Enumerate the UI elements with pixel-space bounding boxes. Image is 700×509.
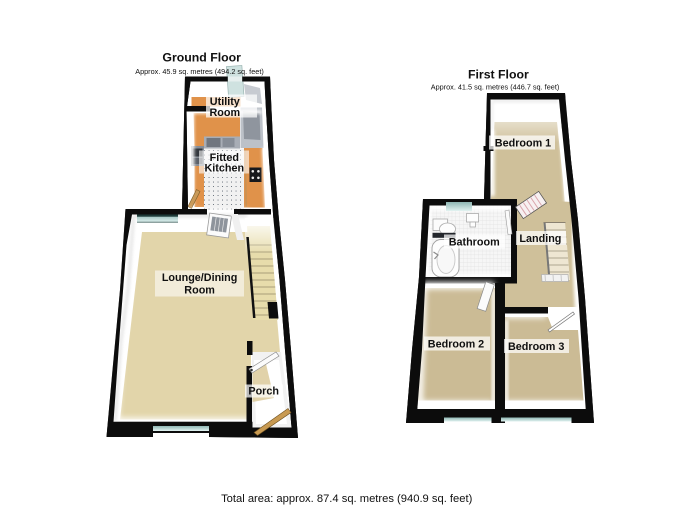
svg-text:Bedroom 1: Bedroom 1 bbox=[495, 138, 551, 150]
svg-text:Porch: Porch bbox=[248, 386, 279, 398]
svg-text:Bedroom 3: Bedroom 3 bbox=[508, 341, 564, 353]
svg-text:Bedroom 2: Bedroom 2 bbox=[428, 338, 484, 350]
svg-text:Bathroom: Bathroom bbox=[449, 237, 500, 249]
svg-text:Approx. 45.9 sq. metres (494.2: Approx. 45.9 sq. metres (494.2 sq. feet) bbox=[135, 67, 264, 76]
svg-text:Approx. 41.5 sq. metres (446.7: Approx. 41.5 sq. metres (446.7 sq. feet) bbox=[431, 83, 560, 92]
svg-text:Room: Room bbox=[210, 107, 241, 119]
svg-text:Ground Floor: Ground Floor bbox=[162, 51, 241, 65]
svg-text:Kitchen: Kitchen bbox=[205, 163, 245, 175]
svg-text:Total area: approx. 87.4 sq. m: Total area: approx. 87.4 sq. metres (940… bbox=[221, 493, 473, 505]
svg-text:First Floor: First Floor bbox=[468, 67, 529, 81]
svg-text:Room: Room bbox=[184, 285, 215, 297]
svg-text:Landing: Landing bbox=[519, 233, 561, 245]
svg-text:Lounge/Dining: Lounge/Dining bbox=[162, 272, 238, 284]
